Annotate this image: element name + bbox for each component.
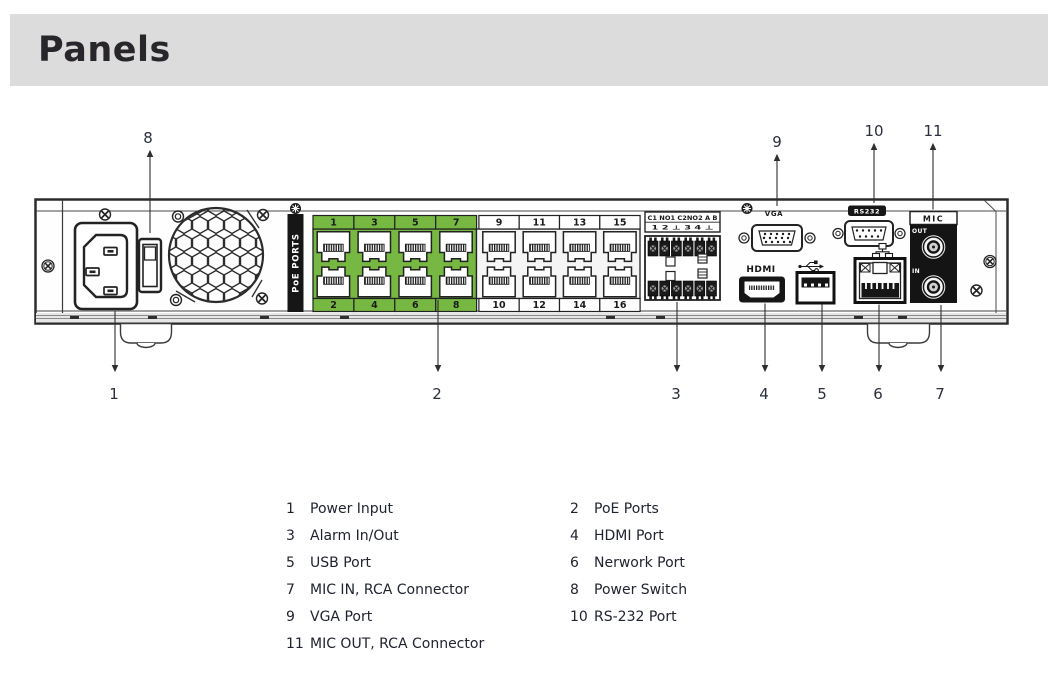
rj45-jack	[604, 232, 636, 262]
rs232-label: RS232	[854, 208, 880, 216]
rj45-jack	[440, 267, 472, 297]
screw-icon	[290, 203, 301, 214]
poe-port-number: 12	[533, 300, 546, 311]
screw-icon	[171, 295, 182, 306]
alarm-terminal-block: C1 NO1 C2NO2 A B 1 2 ⊥ 3 4 ⊥	[645, 212, 720, 300]
legend-item-number: 9	[286, 609, 310, 625]
callout-number: 10	[864, 122, 883, 140]
legend-item: 8 Power Switch	[570, 577, 850, 604]
callout-number: 4	[759, 385, 769, 403]
rj45-jack	[483, 232, 515, 262]
screw-icon	[984, 256, 996, 268]
legend-item-label: Nerwork Port	[594, 555, 685, 571]
rj45-jack	[358, 232, 390, 262]
poe-port-number: 4	[371, 300, 378, 311]
poe-port-number: 9	[496, 218, 503, 229]
rj45-jack	[399, 267, 431, 297]
poe-port-block: 1 3 5 7 9 11 13 15 2 4 6 8 10 12 14 16	[313, 216, 640, 312]
mic-out-label: OUT	[912, 228, 928, 235]
screw-icon	[742, 203, 753, 214]
legend-item: 2 PoE Ports	[570, 496, 850, 523]
screw-icon	[258, 210, 269, 221]
screw-icon	[971, 285, 982, 296]
poe-port-number: 5	[412, 218, 419, 229]
legend-item-number: 1	[286, 501, 310, 517]
cooling-fan	[169, 208, 263, 302]
legend-item: 10 RS-232 Port	[570, 604, 850, 631]
legend-item-number: 6	[570, 555, 594, 571]
legend-item-number: 4	[570, 528, 594, 544]
legend-item: 5 USB Port	[286, 550, 570, 577]
screw-icon	[42, 260, 54, 272]
rear-panel-diagram: PoE PORTS 1 3 5 7 9 11 13 15	[0, 0, 1059, 430]
callout-number: 7	[935, 385, 945, 403]
callout-number: 3	[671, 385, 681, 403]
rj45-jack	[483, 267, 515, 297]
callout-number: 8	[143, 129, 153, 147]
poe-port-number: 2	[330, 300, 337, 311]
legend-item-number: 10	[570, 609, 594, 625]
legend-item-number: 8	[570, 582, 594, 598]
legend-item: 6 Nerwork Port	[570, 550, 850, 577]
legend-item-label: USB Port	[310, 555, 371, 571]
poe-port-number: 7	[453, 218, 460, 229]
poe-port-number: 16	[613, 300, 627, 311]
legend-item-label: MIC IN, RCA Connector	[310, 582, 469, 598]
poe-port-number: 3	[371, 218, 378, 229]
rj45-jack	[317, 267, 349, 297]
poe-port-number: 6	[412, 300, 419, 311]
poe-labels-top: 1 3 5 7 9 11 13 15	[313, 216, 640, 230]
poe-port-number: 11	[533, 218, 546, 229]
vga-label: VGA	[765, 210, 783, 218]
legend-item: 4 HDMI Port	[570, 523, 850, 550]
rj45-jack	[523, 232, 555, 262]
legend-item: 9 VGA Port	[286, 604, 570, 631]
rj45-jack	[563, 232, 595, 262]
screw-icon	[100, 209, 111, 220]
power-switch	[139, 239, 161, 292]
legend-item: 3 Alarm In/Out	[286, 523, 570, 550]
chassis-feet	[121, 324, 930, 348]
legend-item-number: 7	[286, 582, 310, 598]
legend-item-label: RS-232 Port	[594, 609, 677, 625]
callout-number: 2	[432, 385, 442, 403]
hdmi-label: HDMI	[746, 265, 775, 275]
callout-number: 9	[772, 133, 782, 151]
legend-item-number: 2	[570, 501, 594, 517]
alarm-label-row1: C1 NO1 C2NO2 A B	[648, 216, 719, 222]
legend-item-label: Power Input	[310, 501, 393, 517]
poe-port-number: 10	[492, 300, 506, 311]
legend-item-label: Alarm In/Out	[310, 528, 399, 544]
callout-number: 6	[873, 385, 883, 403]
legend-item-number: 3	[286, 528, 310, 544]
legend-item-number: 5	[286, 555, 310, 571]
legend-item: 11 MIC OUT, RCA Connector	[286, 630, 570, 657]
legend-item-number: 11	[286, 636, 310, 652]
rca-jack-in	[922, 276, 945, 299]
callout-number: 1	[109, 385, 119, 403]
rj45-jack	[604, 267, 636, 297]
rj45-jack	[523, 267, 555, 297]
screw-icon	[173, 211, 184, 222]
screw-icon	[257, 293, 268, 304]
legend-item-label: Power Switch	[594, 582, 687, 598]
poe-ports-bar: PoE PORTS	[288, 214, 304, 312]
mic-label: MIC	[923, 215, 944, 224]
rj45-jack	[317, 232, 349, 262]
poe-port-number: 1	[330, 218, 337, 229]
callout-number: 5	[817, 385, 827, 403]
rca-jack-out	[922, 236, 945, 259]
rj45-jack	[358, 267, 390, 297]
mic-in-label: IN	[912, 268, 920, 275]
legend-item: 7 MIC IN, RCA Connector	[286, 577, 570, 604]
legend-item-label: MIC OUT, RCA Connector	[310, 636, 484, 652]
alarm-label-row2: 1 2 ⊥ 3 4 ⊥	[652, 225, 714, 232]
poe-port-number: 13	[573, 218, 586, 229]
legend-item-label: HDMI Port	[594, 528, 664, 544]
poe-port-number: 8	[453, 300, 460, 311]
poe-port-number: 15	[613, 218, 626, 229]
poe-port-number: 14	[573, 300, 587, 311]
rj45-jack	[399, 232, 431, 262]
poe-ports-bar-label: PoE PORTS	[292, 233, 302, 293]
legend-item-label: PoE Ports	[594, 501, 659, 517]
mic-panel: MIC OUT IN	[910, 212, 957, 304]
legend: 1 Power Input 2 PoE Ports 3 Alarm In/Out…	[286, 496, 850, 657]
legend-item-label: VGA Port	[310, 609, 372, 625]
poe-labels-bottom: 2 4 6 8 10 12 14 16	[313, 299, 640, 312]
rj45-jack	[563, 267, 595, 297]
callout-number: 11	[923, 122, 942, 140]
rj45-jack	[440, 232, 472, 262]
legend-item: 1 Power Input	[286, 496, 570, 523]
power-input-connector	[75, 223, 137, 309]
